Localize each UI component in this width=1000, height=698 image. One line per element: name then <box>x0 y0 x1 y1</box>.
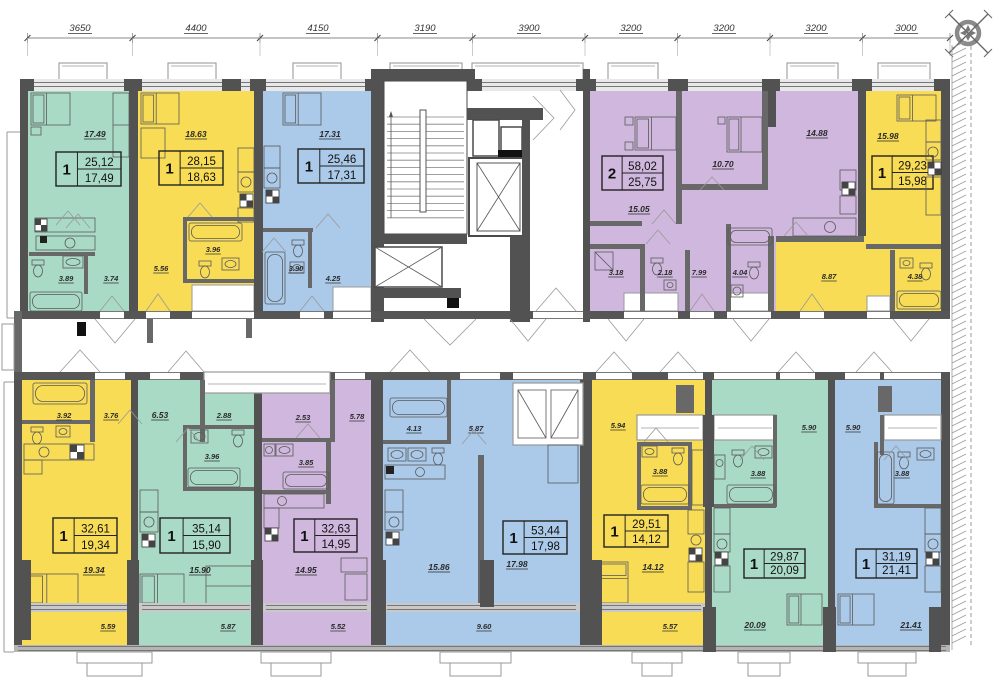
svg-text:14,95: 14,95 <box>322 539 351 551</box>
svg-text:5.90: 5.90 <box>846 423 861 432</box>
svg-text:1: 1 <box>750 556 758 573</box>
svg-text:5.78: 5.78 <box>350 412 365 421</box>
svg-text:3.90: 3.90 <box>289 264 304 273</box>
svg-text:58,02: 58,02 <box>628 161 657 173</box>
svg-text:3200: 3200 <box>713 23 735 34</box>
svg-text:17.98: 17.98 <box>506 559 528 569</box>
svg-text:31,19: 31,19 <box>882 552 911 564</box>
svg-text:4.25: 4.25 <box>325 274 341 283</box>
svg-text:3000: 3000 <box>895 23 917 34</box>
svg-text:1: 1 <box>509 530 517 547</box>
svg-text:4.04: 4.04 <box>732 268 748 277</box>
svg-text:4400: 4400 <box>185 23 207 34</box>
svg-text:3.88: 3.88 <box>751 469 766 478</box>
svg-text:3.92: 3.92 <box>57 411 72 420</box>
svg-text:20,09: 20,09 <box>770 565 799 577</box>
svg-text:53,44: 53,44 <box>531 526 560 538</box>
svg-text:19,34: 19,34 <box>81 540 110 552</box>
svg-text:25,75: 25,75 <box>628 177 657 189</box>
svg-text:14,12: 14,12 <box>632 534 661 546</box>
svg-text:5.87: 5.87 <box>469 424 484 433</box>
svg-text:15.05: 15.05 <box>628 204 650 214</box>
svg-text:32,63: 32,63 <box>322 524 351 536</box>
svg-text:1: 1 <box>59 528 67 545</box>
svg-text:17,31: 17,31 <box>327 170 356 182</box>
svg-text:2.18: 2.18 <box>657 268 673 277</box>
svg-text:15,98: 15,98 <box>898 176 927 188</box>
svg-text:35,14: 35,14 <box>192 524 221 536</box>
svg-text:15,90: 15,90 <box>192 540 221 552</box>
svg-text:21.41: 21.41 <box>899 620 922 630</box>
svg-text:1: 1 <box>305 159 313 176</box>
svg-text:32,61: 32,61 <box>81 524 110 536</box>
svg-text:17.49: 17.49 <box>84 129 106 139</box>
svg-text:3.88: 3.88 <box>653 467 668 476</box>
svg-text:5.94: 5.94 <box>611 421 626 430</box>
svg-text:15.98: 15.98 <box>877 131 899 141</box>
svg-text:3200: 3200 <box>620 23 642 34</box>
svg-text:3.96: 3.96 <box>206 245 221 254</box>
svg-text:8.87: 8.87 <box>822 272 837 281</box>
svg-text:10.70: 10.70 <box>712 159 734 169</box>
svg-text:5.52: 5.52 <box>331 622 346 631</box>
svg-text:15.86: 15.86 <box>428 562 450 572</box>
svg-text:3900: 3900 <box>518 23 540 34</box>
svg-text:5.56: 5.56 <box>154 264 169 273</box>
svg-text:17,98: 17,98 <box>531 541 560 553</box>
svg-text:21,41: 21,41 <box>882 565 911 577</box>
svg-text:1: 1 <box>878 165 886 182</box>
svg-text:14.88: 14.88 <box>806 128 828 138</box>
svg-text:1: 1 <box>610 524 618 541</box>
svg-text:3.88: 3.88 <box>895 469 910 478</box>
svg-text:6.53: 6.53 <box>152 410 169 420</box>
svg-text:17,49: 17,49 <box>85 173 114 185</box>
svg-text:3.85: 3.85 <box>299 458 314 467</box>
svg-text:1: 1 <box>165 161 173 178</box>
svg-text:4.38: 4.38 <box>907 272 923 281</box>
svg-text:3.74: 3.74 <box>104 274 119 283</box>
svg-text:28,15: 28,15 <box>187 156 216 168</box>
svg-text:3.76: 3.76 <box>104 411 119 420</box>
svg-text:3190: 3190 <box>414 23 436 34</box>
svg-text:17.31: 17.31 <box>319 129 341 139</box>
svg-text:5.90: 5.90 <box>802 423 817 432</box>
svg-text:18.63: 18.63 <box>185 129 207 139</box>
svg-text:18,63: 18,63 <box>187 172 216 184</box>
svg-text:4150: 4150 <box>307 23 329 34</box>
svg-text:1: 1 <box>300 528 308 545</box>
svg-text:2.53: 2.53 <box>295 413 311 422</box>
svg-text:1: 1 <box>167 528 175 545</box>
svg-text:9.60: 9.60 <box>477 622 492 631</box>
svg-text:5.57: 5.57 <box>663 622 678 631</box>
svg-text:20.09: 20.09 <box>743 620 766 630</box>
svg-text:2: 2 <box>608 166 616 183</box>
svg-text:3.96: 3.96 <box>205 452 220 461</box>
svg-text:25,46: 25,46 <box>327 154 356 166</box>
svg-text:3650: 3650 <box>69 23 91 34</box>
svg-text:2.88: 2.88 <box>216 411 232 420</box>
svg-text:3.89: 3.89 <box>59 274 74 283</box>
svg-text:29,23: 29,23 <box>898 161 927 173</box>
svg-text:1: 1 <box>862 556 870 573</box>
svg-text:7.99: 7.99 <box>692 268 707 277</box>
svg-text:3.18: 3.18 <box>609 268 624 277</box>
svg-text:14.95: 14.95 <box>295 565 317 575</box>
svg-text:1: 1 <box>63 162 71 179</box>
svg-text:3200: 3200 <box>805 23 827 34</box>
svg-text:29,87: 29,87 <box>770 552 799 564</box>
svg-text:4.13: 4.13 <box>406 424 422 433</box>
svg-text:25,12: 25,12 <box>85 157 114 169</box>
svg-text:5.59: 5.59 <box>101 622 116 631</box>
svg-text:14.12: 14.12 <box>642 562 664 572</box>
svg-text:19.34: 19.34 <box>83 565 105 575</box>
svg-text:5.87: 5.87 <box>221 622 236 631</box>
svg-text:29,51: 29,51 <box>632 519 661 531</box>
